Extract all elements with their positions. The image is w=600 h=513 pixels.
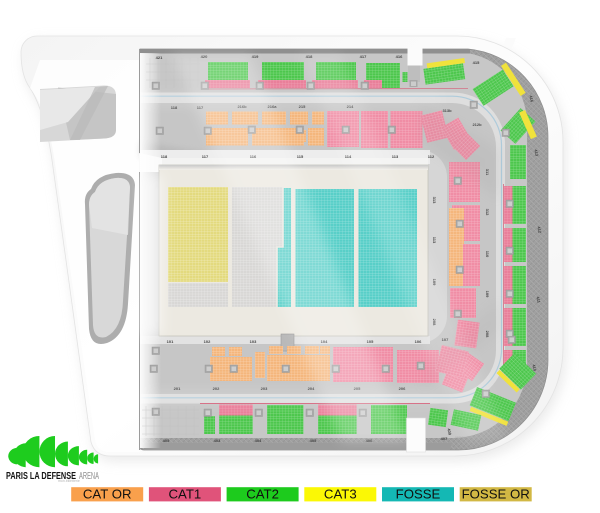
svg-text:ARENA: ARENA: [79, 471, 99, 482]
svg-text:paris-la-defense-arena: paris-la-defense-arena: [455, 435, 486, 439]
svg-text:212b: 212b: [472, 122, 482, 127]
svg-text:201: 201: [174, 386, 181, 391]
svg-text:204: 204: [308, 386, 315, 391]
svg-text:415: 415: [473, 60, 480, 65]
svg-text:101: 101: [167, 339, 174, 344]
svg-text:103: 103: [250, 339, 257, 344]
svg-text:118: 118: [161, 154, 168, 159]
svg-text:202: 202: [213, 386, 220, 391]
svg-text:FOSSE OR: FOSSE OR: [462, 487, 530, 502]
svg-text:117: 117: [202, 154, 209, 159]
svg-text:115: 115: [297, 154, 304, 159]
svg-text:110: 110: [485, 251, 490, 258]
svg-text:312: 312: [485, 209, 490, 216]
svg-text:102: 102: [204, 339, 211, 344]
svg-text:416: 416: [396, 54, 403, 59]
svg-text:313b: 313b: [442, 108, 452, 113]
svg-text:203: 203: [261, 386, 268, 391]
svg-text:112: 112: [428, 154, 435, 159]
svg-text:109: 109: [485, 291, 490, 298]
svg-text:421: 421: [156, 55, 163, 60]
svg-text:313: 313: [432, 197, 437, 204]
svg-text:118: 118: [171, 105, 178, 110]
svg-text:419: 419: [252, 54, 259, 59]
svg-text:403: 403: [214, 438, 221, 443]
svg-text:CAT3: CAT3: [324, 487, 357, 502]
svg-text:106: 106: [415, 339, 422, 344]
svg-text:CAT1: CAT1: [169, 487, 202, 502]
svg-text:206: 206: [399, 386, 406, 391]
svg-text:CAT OR: CAT OR: [83, 487, 132, 502]
svg-text:215: 215: [299, 104, 306, 109]
svg-text:417: 417: [360, 54, 367, 59]
svg-text:405: 405: [310, 438, 317, 443]
svg-text:404: 404: [255, 438, 262, 443]
svg-text:113: 113: [432, 237, 437, 244]
svg-text:CAT2: CAT2: [246, 487, 279, 502]
svg-text:405: 405: [163, 438, 170, 443]
svg-text:407: 407: [441, 436, 448, 441]
svg-text:PARIS LA DEFENSE: PARIS LA DEFENSE: [6, 471, 76, 482]
svg-text:113: 113: [392, 154, 399, 159]
svg-text:FOSSE: FOSSE: [396, 487, 441, 502]
